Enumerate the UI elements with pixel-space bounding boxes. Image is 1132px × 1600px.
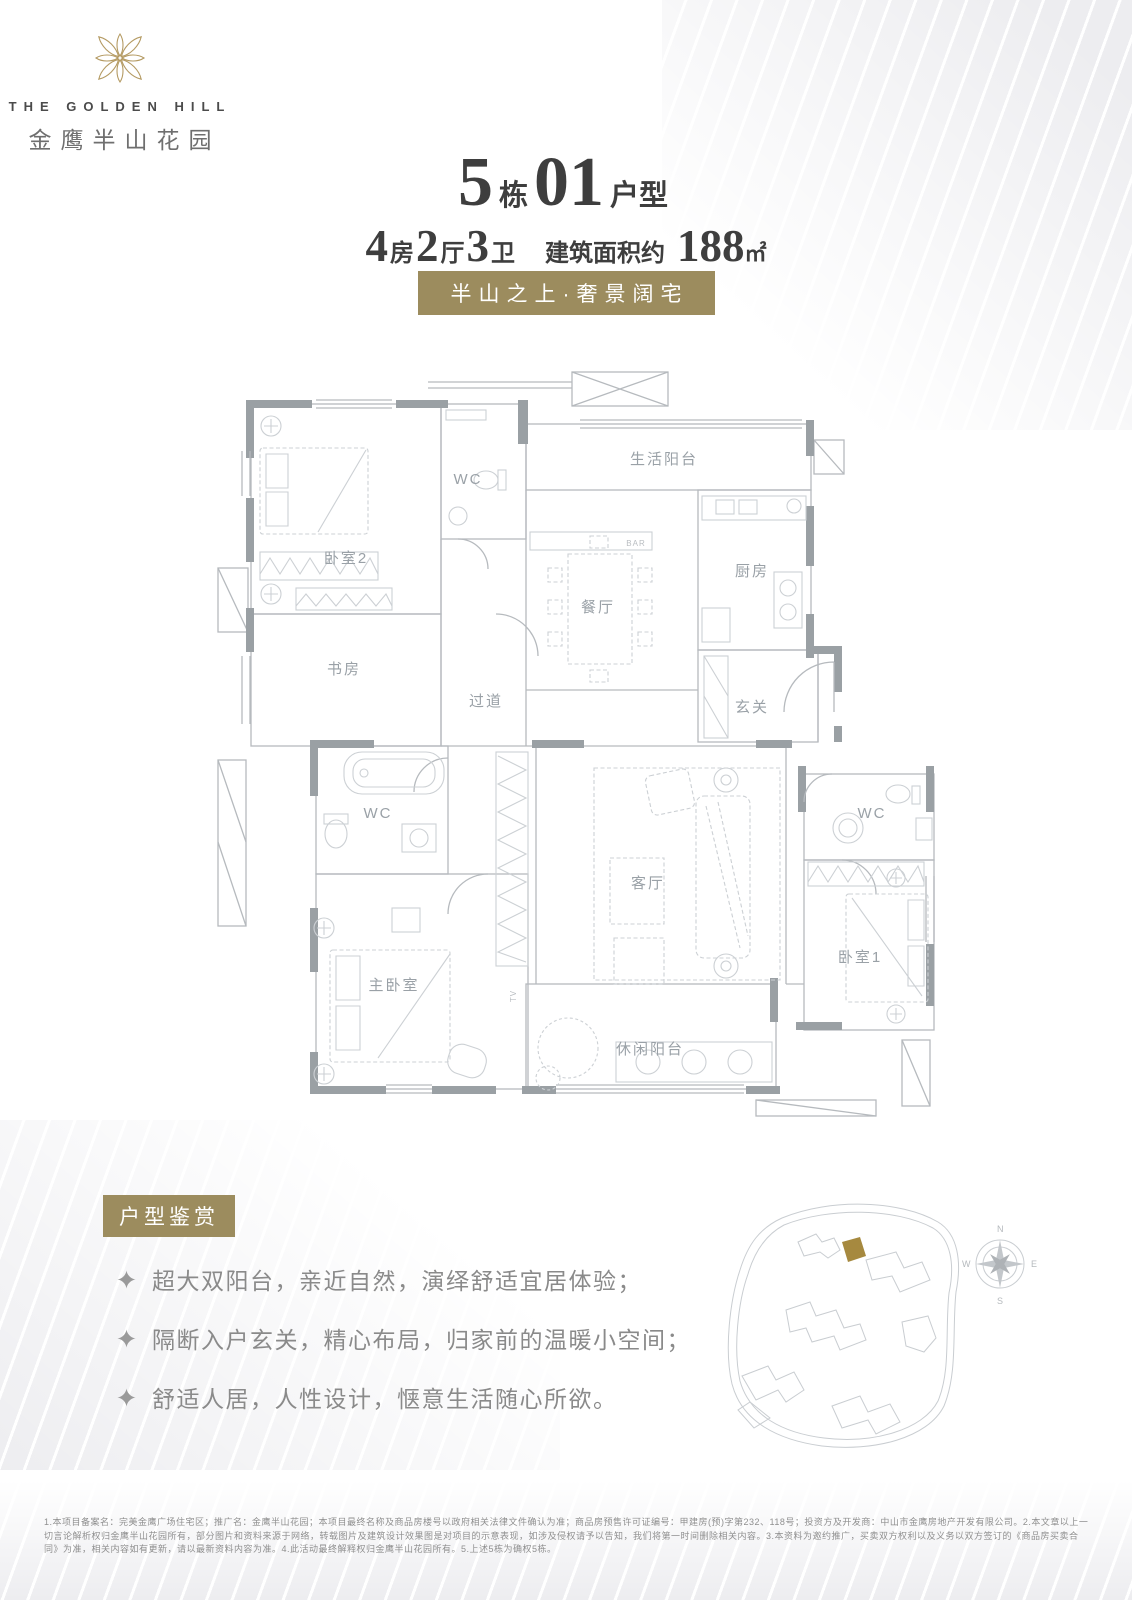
compass-e: E [1031, 1259, 1037, 1269]
poster-page: THE GOLDEN HILL 金鹰半山花园 5 栋 01 户型 4 房 2 厅… [0, 0, 1132, 1600]
compass-s: S [997, 1296, 1003, 1306]
unit-suffix: 户型 [604, 172, 674, 214]
halls-count: 2 [416, 224, 439, 269]
sparkle-icon [117, 1270, 136, 1289]
feature-item: 隔断入户玄关，精心布局，归家前的温暖小空间； [117, 1321, 691, 1355]
beds-count: 4 [365, 224, 388, 269]
area-unit: ㎡ [744, 236, 766, 268]
baths-count: 3 [466, 224, 489, 269]
highlighted-building-5 [842, 1237, 866, 1262]
unit-title: 5 栋 01 户型 [0, 148, 1132, 218]
feature-item: 超大双阳台，亲近自然，演绎舒适宜居体验； [117, 1262, 691, 1296]
room-label-foyer: 玄关 [735, 699, 769, 716]
unit-specs: 4 房 2 厅 3 卫 建筑面积约 188 ㎡ [0, 224, 1132, 269]
tagline-wrap: 半山之上·奢景阔宅 [0, 271, 1132, 315]
building-number: 5 [458, 148, 493, 218]
bar-label: BAR [626, 539, 645, 548]
tv-label: TV [509, 990, 518, 1002]
features-badge: 户型鉴赏 [103, 1195, 235, 1237]
room-label-study: 书房 [327, 661, 361, 678]
compass-w: W [962, 1259, 971, 1269]
room-label-living: 客厅 [631, 875, 665, 892]
sparkle-icon [117, 1388, 136, 1407]
room-label-leisure-balcony: 休闲阳台 [616, 1041, 684, 1058]
room-label-corridor: 过道 [469, 693, 503, 710]
sparkle-icon [117, 1329, 136, 1348]
room-label-wc-right: WC [858, 805, 887, 822]
area-prefix: 建筑面积约 [543, 233, 667, 268]
compass-icon: N E S W [962, 1224, 1037, 1306]
room-label-wc-top: WC [454, 471, 483, 488]
flower-icon [88, 26, 152, 90]
area-value: 188 [677, 224, 745, 269]
floorplan-drawing: 卧室2 WC 生活阳台 厨房 餐厅 书房 过道 玄关 WC 客厅 WC 主卧室 … [196, 356, 936, 1126]
room-label-bedroom1: 卧室1 [838, 949, 882, 966]
brand-logo: THE GOLDEN HILL 金鹰半山花园 [0, 26, 240, 155]
compass-n: N [997, 1224, 1004, 1234]
room-label-master: 主卧室 [368, 977, 419, 994]
room-label-dining: 餐厅 [581, 599, 615, 616]
beds-label: 房 [388, 233, 416, 268]
unit-number: 01 [534, 148, 604, 218]
feature-item: 舒适人居，人性设计，惬意生活随心所欲。 [117, 1380, 691, 1414]
logo-text-en: THE GOLDEN HILL [0, 99, 240, 114]
siteplan-map: N E S W [690, 1180, 1110, 1470]
building-suffix: 栋 [493, 172, 534, 214]
feature-text: 隔断入户玄关，精心布局，归家前的温暖小空间； [152, 1321, 691, 1355]
feature-text: 舒适人居，人性设计，惬意生活随心所欲。 [152, 1380, 618, 1414]
room-label-wc-master: WC [364, 805, 393, 822]
room-label-kitchen: 厨房 [735, 563, 769, 580]
disclaimer-text: 1.本项目备案名：完美金鹰广场住宅区；推广名：金鹰半山花园；本项目最终名称及商品… [44, 1516, 1092, 1557]
room-label-life-balcony: 生活阳台 [630, 451, 698, 468]
halls-label: 厅 [438, 233, 466, 268]
tagline-badge: 半山之上·奢景阔宅 [418, 271, 715, 315]
feature-text: 超大双阳台，亲近自然，演绎舒适宜居体验； [152, 1262, 642, 1296]
room-label-bedroom2: 卧室2 [324, 550, 368, 567]
features-list: 超大双阳台，亲近自然，演绎舒适宜居体验； 隔断入户玄关，精心布局，归家前的温暖小… [117, 1262, 691, 1414]
baths-label: 卫 [489, 233, 517, 268]
